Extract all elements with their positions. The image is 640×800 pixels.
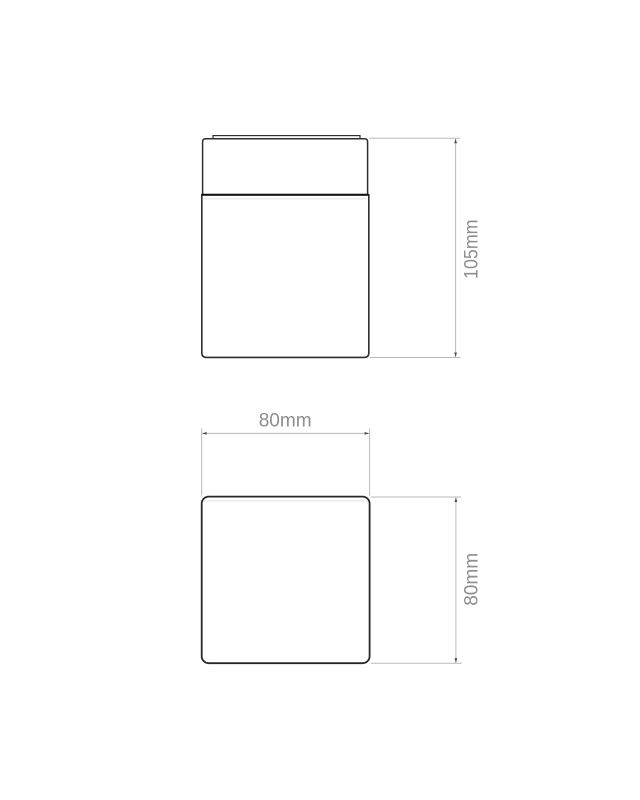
svg-text:80mm: 80mm	[462, 553, 483, 606]
svg-text:105mm: 105mm	[462, 219, 483, 279]
svg-text:80mm: 80mm	[259, 411, 312, 432]
